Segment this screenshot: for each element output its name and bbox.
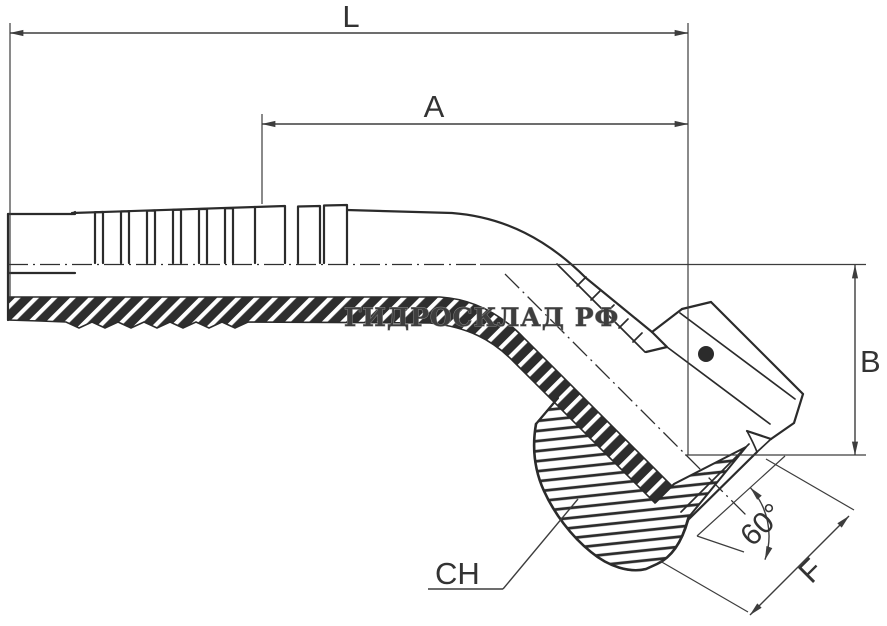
swivel-nut bbox=[652, 302, 803, 452]
technical-drawing-canvas: L A B CH F 60° ГИДРОСКЛАД РФ bbox=[0, 0, 887, 626]
nut-outer-edge bbox=[711, 302, 803, 394]
crimp-collar-2 bbox=[324, 205, 347, 263]
nut-flat-inner-2 bbox=[667, 347, 770, 424]
barb-teeth bbox=[95, 208, 233, 263]
dim-L-label: L bbox=[342, 0, 359, 34]
nut-top-left-face bbox=[652, 309, 682, 332]
fitting-technical-drawing: L A B CH F 60° ГИДРОСКЛАД РФ bbox=[0, 0, 887, 626]
dim-B-label: B bbox=[860, 344, 881, 379]
nut-top-face bbox=[682, 302, 711, 309]
nut-chamfer bbox=[771, 394, 803, 439]
dim-CH-leader bbox=[503, 499, 578, 589]
watermark-text: ГИДРОСКЛАД РФ bbox=[344, 303, 619, 332]
angle-label: 60° bbox=[734, 497, 790, 552]
crimp-collar-1 bbox=[298, 206, 320, 263]
nut-skirt-notch bbox=[646, 332, 667, 352]
angle-ray-2 bbox=[697, 536, 744, 552]
dim-A-label: A bbox=[424, 89, 445, 124]
dim-F-ext-1 bbox=[766, 459, 854, 510]
dim-CH-label: CH bbox=[435, 556, 480, 591]
nut-center-mark-dot bbox=[698, 346, 714, 362]
dim-F-ext-2 bbox=[660, 561, 748, 612]
crimp-collar-wide bbox=[255, 206, 285, 263]
nut-flat-inner-1 bbox=[680, 313, 795, 399]
dim-F-label: F bbox=[792, 552, 830, 590]
